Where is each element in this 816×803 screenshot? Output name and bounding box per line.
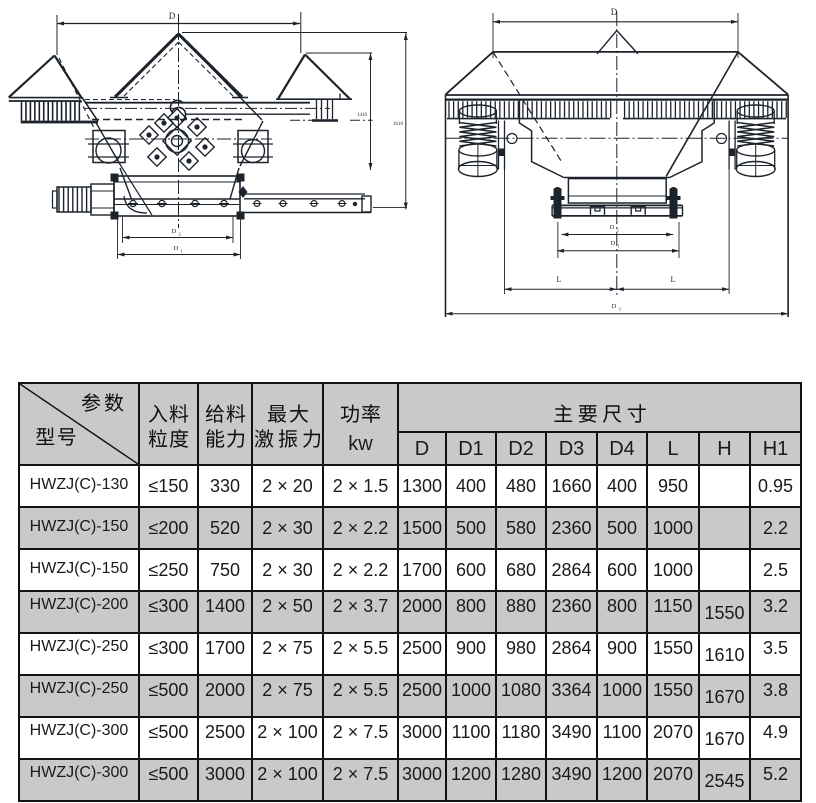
svg-text:3: 3 bbox=[619, 307, 622, 312]
svg-text:D: D bbox=[611, 240, 616, 247]
svg-text:2: 2 bbox=[179, 232, 181, 237]
svg-text:D: D bbox=[610, 224, 615, 231]
svg-text:D: D bbox=[169, 11, 176, 21]
svg-text:2: 2 bbox=[617, 228, 619, 233]
svg-text:L: L bbox=[557, 275, 562, 284]
svg-text:1: 1 bbox=[618, 244, 620, 249]
svg-text:D: D bbox=[174, 245, 179, 252]
svg-text:D: D bbox=[172, 228, 177, 235]
svg-text:L: L bbox=[671, 275, 676, 284]
svg-text:D: D bbox=[612, 303, 617, 310]
svg-text:1: 1 bbox=[181, 249, 183, 254]
svg-text:1610: 1610 bbox=[393, 122, 404, 127]
svg-text:1410: 1410 bbox=[357, 113, 368, 118]
